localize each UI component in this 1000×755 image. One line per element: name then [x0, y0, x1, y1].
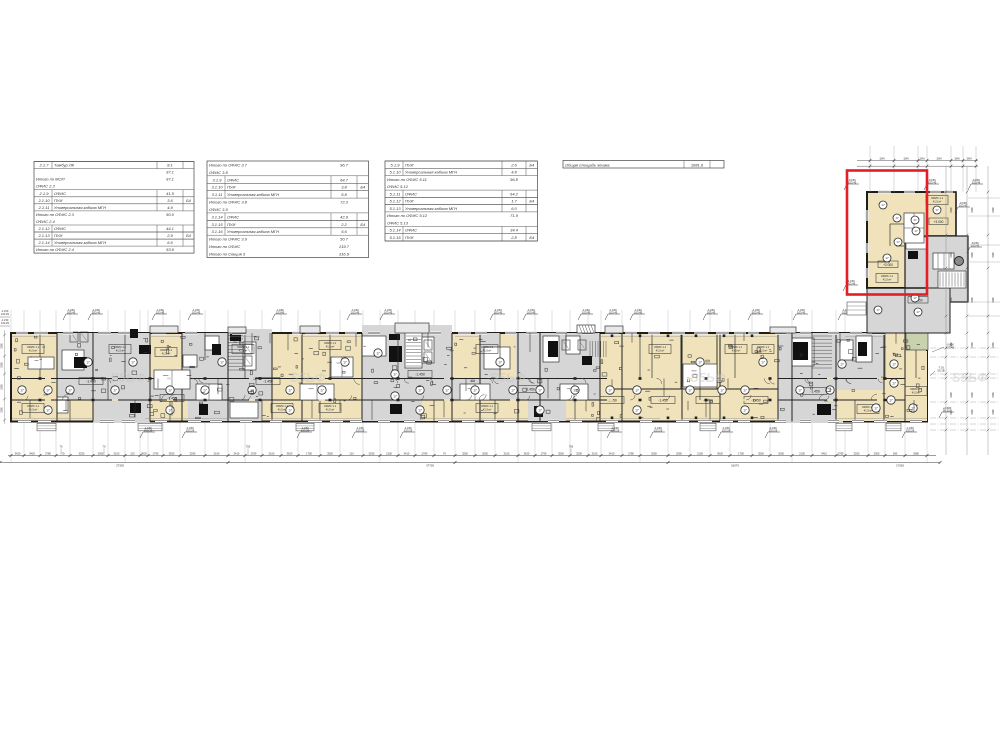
svg-text:103.45: 103.45	[351, 311, 360, 315]
svg-text:3250: 3250	[854, 451, 860, 455]
svg-text:2.8: 2.8	[510, 235, 517, 240]
svg-text:103.29: 103.29	[301, 429, 310, 433]
svg-text:17: 17	[86, 360, 90, 364]
svg-text:2980: 2980	[913, 451, 919, 455]
svg-text:2780: 2780	[422, 451, 428, 455]
svg-text:ОФИС 5.12: ОФИС 5.12	[387, 184, 409, 189]
svg-text:3290: 3290	[369, 451, 375, 455]
svg-text:-1.450: -1.450	[810, 389, 820, 393]
svg-text:Универсальная кабина МГН: Универсальная кабина МГН	[405, 170, 457, 175]
svg-text:ПУИ: ПУИ	[405, 235, 413, 240]
svg-text:17: 17	[343, 360, 347, 364]
svg-text:3620: 3620	[524, 451, 530, 455]
svg-text:64.2: 64.2	[510, 191, 519, 196]
svg-text:5.1.9: 5.1.9	[391, 162, 401, 167]
svg-text:41.5 м²: 41.5 м²	[278, 408, 287, 412]
svg-text:2050: 2050	[482, 451, 488, 455]
svg-text:ОФИС 3.9: ОФИС 3.9	[209, 207, 228, 212]
svg-text:103.29: 103.29	[611, 429, 620, 433]
svg-text:103.45: 103.45	[527, 311, 536, 315]
svg-text:17: 17	[511, 388, 515, 392]
svg-text:2050: 2050	[98, 451, 104, 455]
svg-text:17: 17	[840, 362, 844, 366]
svg-text:ОФИС 1.1: ОФИС 1.1	[114, 345, 127, 349]
svg-text:17: 17	[913, 296, 917, 300]
svg-text:27300: 27300	[116, 464, 124, 468]
svg-text:3180: 3180	[1, 407, 4, 413]
svg-text:ОФИС 1.1: ОФИС 1.1	[324, 341, 337, 345]
svg-text:3410: 3410	[404, 451, 410, 455]
svg-text:ОФИС 1.1: ОФИС 1.1	[757, 345, 770, 349]
svg-text:17: 17	[203, 388, 207, 392]
svg-text:ОФИС 1.1: ОФИС 1.1	[881, 274, 894, 278]
svg-text:2.2: 2.2	[340, 222, 347, 227]
svg-text:17: 17	[46, 408, 50, 412]
svg-text:ОФИС 2.4: ОФИС 2.4	[36, 219, 55, 224]
svg-text:750: 750	[246, 445, 251, 449]
svg-text:3180: 3180	[992, 252, 995, 258]
svg-text:103.29: 103.29	[722, 429, 731, 433]
svg-text:103.45: 103.45	[276, 311, 285, 315]
svg-text:ПУИ: ПУИ	[227, 185, 235, 190]
svg-text:3620: 3620	[717, 451, 723, 455]
svg-text:ОФИС: ОФИС	[405, 191, 417, 196]
svg-text:3180: 3180	[950, 207, 953, 213]
svg-text:5.1.15: 5.1.15	[389, 235, 401, 240]
svg-text:Б4: Б4	[186, 198, 192, 203]
svg-text:3290: 3290	[190, 451, 196, 455]
svg-text:3180: 3180	[1, 384, 4, 390]
svg-text:17: 17	[688, 388, 692, 392]
svg-text:17: 17	[473, 388, 477, 392]
svg-text:1540: 1540	[966, 158, 972, 161]
svg-text:103.45: 103.45	[752, 311, 761, 315]
svg-text:37700: 37700	[426, 464, 434, 468]
svg-text:Универсальная кабина МГН: Универсальная кабина МГН	[54, 205, 106, 210]
svg-text:ОФИС 1.1: ОФИС 1.1	[931, 196, 944, 200]
svg-text:103.45: 103.45	[848, 181, 857, 185]
svg-text:290: 290	[893, 451, 898, 455]
svg-text:17: 17	[720, 388, 724, 392]
svg-text:3.8: 3.8	[341, 185, 347, 190]
svg-text:Итого по ОФИС 3.7: Итого по ОФИС 3.7	[209, 162, 248, 167]
svg-text:3180: 3180	[950, 297, 953, 303]
svg-text:17: 17	[498, 360, 502, 364]
svg-text:3.6: 3.6	[167, 198, 173, 203]
svg-text:44.1: 44.1	[166, 226, 174, 231]
svg-text:4.9: 4.9	[167, 205, 173, 210]
svg-text:Итого по Секция 3: Итого по Секция 3	[209, 252, 246, 257]
svg-text:Итого по ОФИС 5.12: Итого по ОФИС 5.12	[387, 213, 428, 218]
svg-text:50.1В: 50.1В	[937, 369, 944, 373]
svg-text:Универсальная кабина МГН: Универсальная кабина МГН	[227, 192, 279, 197]
svg-text:17: 17	[46, 388, 50, 392]
svg-text:3.1.16: 3.1.16	[211, 229, 223, 234]
svg-text:5.1.11: 5.1.11	[390, 191, 401, 196]
svg-text:ОФИС 1.1: ОФИС 1.1	[27, 345, 40, 349]
svg-text:17: 17	[608, 388, 612, 392]
svg-text:2100: 2100	[697, 451, 703, 455]
svg-text:17: 17	[916, 310, 920, 314]
svg-text:42.9: 42.9	[340, 214, 349, 219]
svg-text:17: 17	[876, 308, 880, 312]
svg-text:2.1.10: 2.1.10	[37, 198, 50, 203]
svg-text:3180: 3180	[971, 297, 974, 303]
svg-text:2100: 2100	[386, 451, 392, 455]
svg-text:96.7: 96.7	[340, 162, 349, 167]
svg-text:41.5 м²: 41.5 м²	[483, 408, 492, 412]
svg-text:5.6: 5.6	[341, 229, 347, 234]
svg-text:1540: 1540	[954, 158, 960, 161]
svg-text:ПУИ: ПУИ	[54, 233, 62, 238]
svg-text:ОФИС 1.1: ОФИС 1.1	[910, 387, 923, 391]
svg-text:2.1.13: 2.1.13	[37, 233, 50, 238]
svg-text:-1.450: -1.450	[86, 379, 96, 383]
svg-text:103.45: 103.45	[971, 244, 980, 248]
svg-text:ПУИ: ПУИ	[54, 198, 62, 203]
svg-text:3180: 3180	[971, 392, 974, 398]
svg-text:16070: 16070	[731, 464, 739, 468]
svg-text:3180: 3180	[992, 297, 995, 303]
svg-text:41.5 м²: 41.5 м²	[912, 391, 921, 395]
svg-text:17: 17	[288, 388, 292, 392]
svg-text:Универсальная кабина МГН: Универсальная кабина МГН	[227, 229, 279, 234]
svg-text:ОФИС 1.1: ОФИС 1.1	[654, 345, 667, 349]
svg-text:750: 750	[569, 445, 574, 449]
svg-text:17: 17	[20, 388, 24, 392]
svg-text:3250: 3250	[651, 451, 657, 455]
svg-text:3290: 3290	[576, 451, 582, 455]
svg-text:17: 17	[895, 216, 899, 220]
svg-text:ОФИС 1.1: ОФИС 1.1	[481, 345, 494, 349]
svg-text:316.9: 316.9	[339, 252, 350, 257]
svg-text:41.5 м²: 41.5 м²	[483, 349, 492, 353]
svg-text:103.45: 103.45	[634, 311, 643, 315]
svg-text:3180: 3180	[971, 409, 974, 415]
svg-text:Ѕ5ЬФ: Ѕ5ЬФ	[952, 370, 988, 385]
svg-text:5.8: 5.8	[341, 192, 347, 197]
svg-text:-1.450: -1.450	[415, 372, 425, 376]
svg-text:17: 17	[538, 408, 542, 412]
svg-text:ОФИС 1.1: ОФИС 1.1	[237, 345, 250, 349]
svg-text:17: 17	[761, 360, 765, 364]
svg-text:17: 17	[881, 203, 885, 207]
svg-text:97.1: 97.1	[166, 177, 174, 182]
svg-text:3250: 3250	[462, 451, 468, 455]
svg-text:Итого по ОФИС 3.9: Итого по ОФИС 3.9	[209, 237, 248, 242]
svg-text:50.0: 50.0	[166, 212, 175, 217]
svg-text:ОФИС: ОФИС	[54, 226, 66, 231]
svg-text:3180: 3180	[950, 409, 953, 415]
svg-text:3180: 3180	[992, 392, 995, 398]
svg-text:53.6: 53.6	[166, 247, 175, 252]
svg-text:3180: 3180	[971, 252, 974, 258]
svg-text:4.8: 4.8	[511, 170, 517, 175]
svg-text:103.45: 103.45	[847, 282, 856, 286]
svg-text:103.45: 103.45	[928, 181, 937, 185]
svg-text:Ѕ5ЬФ: Ѕ5ЬФ	[290, 370, 326, 385]
svg-text:210: 210	[130, 451, 135, 455]
svg-text:3.1.15: 3.1.15	[211, 222, 223, 227]
svg-text:3550: 3550	[558, 451, 564, 455]
svg-text:2050: 2050	[676, 451, 682, 455]
svg-text:103.45: 103.45	[972, 181, 981, 185]
svg-text:2780: 2780	[251, 451, 257, 455]
svg-text:17: 17	[896, 240, 900, 244]
svg-text:50.7: 50.7	[340, 237, 349, 242]
svg-text:103.29: 103.29	[769, 429, 778, 433]
svg-text:6.0: 6.0	[511, 206, 517, 211]
svg-text:17: 17	[376, 351, 380, 355]
svg-text:103.29: 103.29	[654, 429, 663, 433]
svg-text:Итого по ОФИС: Итого по ОФИС	[209, 244, 240, 249]
svg-text:17: 17	[113, 388, 117, 392]
svg-text:2100: 2100	[214, 451, 220, 455]
svg-text:2.1.9: 2.1.9	[39, 191, 50, 196]
svg-text:103.45: 103.45	[92, 311, 101, 315]
svg-text:3180: 3180	[971, 342, 974, 348]
svg-text:17: 17	[798, 388, 802, 392]
svg-text:17: 17	[743, 408, 747, 412]
svg-text:3620: 3620	[141, 451, 147, 455]
svg-text:3180: 3180	[1, 362, 4, 368]
svg-text:3420: 3420	[29, 451, 35, 455]
svg-text:3550: 3550	[758, 451, 764, 455]
svg-text:17: 17	[885, 256, 889, 260]
svg-text:3290: 3290	[778, 451, 784, 455]
svg-text:17000: 17000	[896, 464, 904, 468]
svg-text:2.6: 2.6	[510, 162, 517, 167]
svg-text:103.29: 103.29	[356, 429, 365, 433]
svg-text:17: 17	[168, 388, 172, 392]
svg-text:1790: 1790	[541, 451, 547, 455]
svg-text:17: 17	[874, 406, 878, 410]
svg-text:+3.000: +3.000	[934, 220, 944, 224]
svg-text:Универсальная кабина МГН: Универсальная кабина МГН	[405, 206, 457, 211]
svg-text:103.45: 103.45	[384, 311, 393, 315]
svg-text:1540: 1540	[936, 158, 942, 161]
svg-text:103.45: 103.45	[67, 311, 76, 315]
svg-text:97.1: 97.1	[166, 170, 174, 175]
svg-text:1790: 1790	[153, 451, 159, 455]
svg-text:103.45: 103.45	[609, 311, 618, 315]
svg-text:Итого по ОФИС 2.3: Итого по ОФИС 2.3	[36, 212, 75, 217]
svg-text:41.5 м²: 41.5 м²	[864, 409, 873, 413]
svg-text:2780: 2780	[628, 451, 634, 455]
svg-text:17: 17	[131, 360, 135, 364]
svg-text:103.45: 103.45	[797, 311, 806, 315]
svg-text:3250: 3250	[79, 451, 85, 455]
svg-text:5.1.13: 5.1.13	[389, 206, 401, 211]
svg-text:2780: 2780	[838, 451, 844, 455]
svg-text:2050: 2050	[874, 451, 880, 455]
svg-text:17: 17	[418, 388, 422, 392]
svg-text:103.45: 103.45	[707, 311, 716, 315]
svg-text:ОФИС 1.1: ОФИС 1.1	[27, 404, 40, 408]
svg-text:17: 17	[168, 408, 172, 412]
svg-text:Б4: Б4	[360, 222, 366, 227]
svg-text:17: 17	[913, 218, 917, 222]
svg-text:Ѕ5ЬФ: Ѕ5ЬФ	[110, 370, 146, 385]
svg-text:2100: 2100	[504, 451, 510, 455]
svg-text:Ѕ5ЬФ: Ѕ5ЬФ	[690, 370, 726, 385]
svg-text:17: 17	[892, 381, 896, 385]
svg-text:2.1.11: 2.1.11	[38, 205, 50, 210]
svg-text:41.5 м²: 41.5 м²	[933, 200, 942, 204]
svg-text:3180: 3180	[1, 343, 4, 349]
svg-text:ОФИС 1.1: ОФИС 1.1	[481, 404, 494, 408]
svg-text:2.1.12: 2.1.12	[37, 226, 50, 231]
svg-text:3180: 3180	[950, 392, 953, 398]
svg-text:ОФИС 5.13: ОФИС 5.13	[387, 220, 409, 225]
svg-text:Итого по МОП: Итого по МОП	[36, 177, 65, 182]
svg-text:41.5 м²: 41.5 м²	[116, 349, 125, 353]
svg-text:3180: 3180	[992, 409, 995, 415]
svg-text:Б4: Б4	[529, 162, 535, 167]
svg-text:6.6: 6.6	[167, 240, 173, 245]
svg-text:3180: 3180	[992, 342, 995, 348]
svg-text:Итого по ОФИС 5.11: Итого по ОФИС 5.11	[387, 177, 427, 182]
svg-text:103.45: 103.45	[192, 311, 201, 315]
svg-text:ОФИС: ОФИС	[405, 228, 417, 233]
svg-text:5.1.10: 5.1.10	[389, 170, 401, 175]
svg-text:17: 17	[538, 388, 542, 392]
svg-text:41.5 м²: 41.5 м²	[656, 349, 665, 353]
svg-text:3550: 3550	[327, 451, 333, 455]
svg-text:ОФИС: ОФИС	[227, 214, 239, 219]
svg-text:17: 17	[635, 408, 639, 412]
svg-text:ОФИС 3.8: ОФИС 3.8	[209, 170, 228, 175]
svg-text:3.1.9: 3.1.9	[213, 177, 223, 182]
svg-text:103.45: 103.45	[959, 204, 968, 208]
svg-text:17: 17	[393, 372, 397, 376]
svg-text:-1.450: -1.450	[751, 398, 761, 402]
svg-text:Б4: Б4	[529, 199, 535, 204]
svg-text:1540: 1540	[879, 158, 885, 161]
svg-text:+2.000: +2.000	[883, 263, 893, 267]
svg-text:96.8: 96.8	[510, 177, 519, 182]
svg-text:ОФИС: ОФИС	[54, 191, 66, 196]
svg-text:17: 17	[445, 388, 449, 392]
svg-text:103.45: 103.45	[156, 311, 165, 315]
svg-text:17: 17	[914, 229, 918, 233]
svg-text:ПУИ: ПУИ	[227, 222, 235, 227]
svg-text:2100: 2100	[592, 451, 598, 455]
svg-text:41.5 м²: 41.5 м²	[326, 345, 335, 349]
svg-text:210: 210	[349, 451, 354, 455]
svg-text:3180: 3180	[950, 252, 953, 258]
svg-text:Б4: Б4	[186, 233, 192, 238]
svg-text:17: 17	[393, 394, 397, 398]
svg-text:103.29: 103.29	[1, 321, 9, 325]
svg-text:ОФИС: ОФИС	[227, 177, 239, 182]
svg-text:5.1.12: 5.1.12	[389, 199, 401, 204]
svg-text:41.5 м²: 41.5 м²	[29, 349, 38, 353]
svg-text:41.5 м²: 41.5 м²	[883, 278, 892, 282]
svg-text:1790: 1790	[306, 451, 312, 455]
svg-text:1540: 1540	[919, 158, 925, 161]
svg-text:5.1.14: 5.1.14	[389, 228, 401, 233]
svg-text:Б4: Б4	[360, 185, 366, 190]
svg-text:17: 17	[418, 408, 422, 412]
svg-text:17: 17	[892, 362, 896, 366]
svg-text:Общая площадь этажа: Общая площадь этажа	[565, 162, 610, 167]
svg-text:103.29: 103.29	[186, 429, 195, 433]
svg-text:103.29: 103.29	[906, 429, 915, 433]
svg-text:17: 17	[68, 388, 72, 392]
svg-text:2100: 2100	[799, 451, 805, 455]
svg-text:ПУИ: ПУИ	[405, 199, 413, 204]
svg-text:-1.450: -1.450	[263, 379, 273, 383]
svg-text:3180: 3180	[950, 342, 953, 348]
svg-text:103.45: 103.45	[582, 311, 591, 315]
svg-text:103.29: 103.29	[404, 429, 413, 433]
svg-text:17: 17	[889, 398, 893, 402]
svg-text:71.9: 71.9	[510, 213, 519, 218]
svg-text:Универсальная кабина МГН: Универсальная кабина МГН	[54, 240, 106, 245]
svg-text:1790: 1790	[738, 451, 744, 455]
svg-text:3550: 3550	[169, 451, 175, 455]
svg-text:3410: 3410	[821, 451, 827, 455]
svg-text:3180: 3180	[992, 207, 995, 213]
svg-text:17: 17	[635, 388, 639, 392]
svg-text:2.9: 2.9	[166, 233, 173, 238]
svg-text:219.7: 219.7	[338, 244, 350, 249]
svg-text:1.7: 1.7	[511, 199, 517, 204]
svg-text:2.1.7: 2.1.7	[39, 163, 50, 168]
svg-text:17: 17	[220, 360, 224, 364]
svg-text:41.5: 41.5	[166, 191, 175, 196]
svg-text:103.29: 103.29	[1, 312, 9, 316]
svg-text:Тамбур ЛК: Тамбур ЛК	[54, 163, 75, 168]
svg-text:72.3: 72.3	[340, 200, 349, 205]
svg-text:2100: 2100	[269, 451, 275, 455]
svg-text:Итого по ОФИС 3.8: Итого по ОФИС 3.8	[209, 200, 248, 205]
svg-text:ОФИС 1.1: ОФИС 1.1	[324, 404, 337, 408]
svg-text:2780: 2780	[45, 451, 51, 455]
svg-text:41.5 м²: 41.5 м²	[732, 349, 741, 353]
svg-text:17: 17	[573, 388, 577, 392]
svg-text:17: 17	[743, 388, 747, 392]
svg-text:34.4: 34.4	[510, 228, 519, 233]
svg-text:17: 17	[320, 388, 324, 392]
svg-text:103.45: 103.45	[494, 311, 503, 315]
svg-text:3410: 3410	[609, 451, 615, 455]
svg-text:3420: 3420	[15, 451, 21, 455]
svg-text:17: 17	[288, 408, 292, 412]
svg-text:3180: 3180	[971, 207, 974, 213]
svg-text:2.1.14: 2.1.14	[37, 240, 50, 245]
svg-text:Б4: Б4	[529, 235, 535, 240]
svg-text:1881.6: 1881.6	[691, 162, 704, 167]
svg-text:2100: 2100	[114, 451, 120, 455]
svg-text:3.1.11: 3.1.11	[212, 192, 223, 197]
svg-text:64.7: 64.7	[340, 177, 349, 182]
svg-text:3410: 3410	[234, 451, 240, 455]
svg-text:8.1: 8.1	[167, 163, 173, 168]
svg-text:Итого по ОФИС 2.4: Итого по ОФИС 2.4	[36, 247, 75, 252]
svg-text:41.5 м²: 41.5 м²	[326, 408, 335, 412]
svg-text:3.1.10: 3.1.10	[211, 185, 223, 190]
svg-text:41.5 м²: 41.5 м²	[239, 349, 248, 353]
svg-text:ОФИС 2.3: ОФИС 2.3	[36, 184, 55, 189]
svg-text:17: 17	[698, 360, 702, 364]
svg-text:-1.450: -1.450	[658, 398, 668, 402]
svg-text:3.1.14: 3.1.14	[211, 214, 223, 219]
svg-text:103.29: 103.29	[144, 429, 153, 433]
svg-text:Ѕ5ЬФ: Ѕ5ЬФ	[490, 370, 526, 385]
svg-text:3620: 3620	[287, 451, 293, 455]
